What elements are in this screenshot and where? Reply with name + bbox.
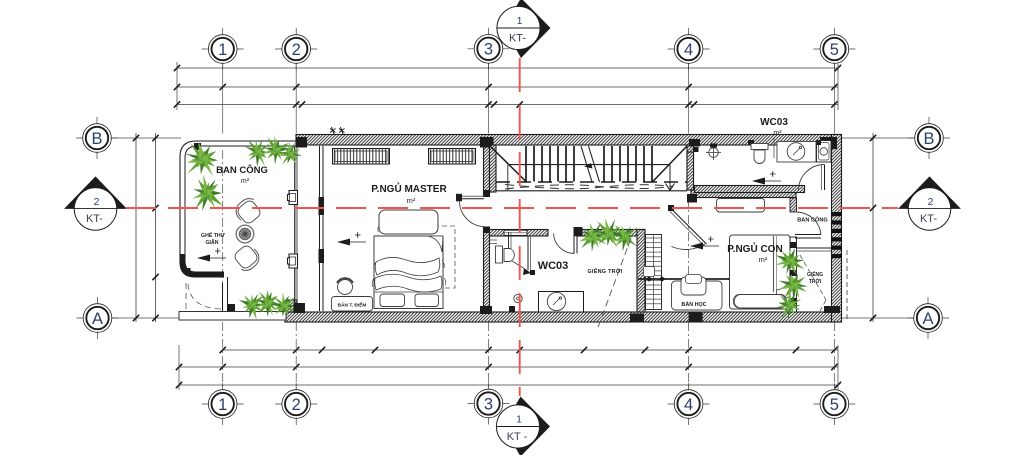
- svg-text:1: 1: [218, 41, 227, 59]
- svg-text:m²: m²: [407, 196, 416, 205]
- svg-text:5: 5: [830, 396, 839, 414]
- svg-text:4: 4: [684, 396, 693, 414]
- svg-text:BAN CÔNG: BAN CÔNG: [797, 216, 827, 224]
- svg-text:3: 3: [484, 41, 493, 59]
- svg-text:B: B: [923, 130, 934, 148]
- svg-text:BAN CÔNG: BAN CÔNG: [216, 164, 268, 176]
- svg-text:5: 5: [830, 41, 839, 59]
- svg-text:TRỜI: TRỜI: [809, 277, 822, 285]
- svg-text:1: 1: [218, 396, 227, 414]
- svg-text:BÀN T. ĐIỂM: BÀN T. ĐIỂM: [338, 302, 367, 309]
- svg-text:3: 3: [484, 395, 493, 413]
- svg-text:KT-: KT-: [920, 213, 937, 225]
- svg-text:m²: m²: [759, 255, 768, 264]
- svg-text:A: A: [922, 310, 933, 328]
- svg-text:P.NGỦ CON: P.NGỦ CON: [727, 242, 782, 255]
- svg-text:KT -: KT -: [507, 431, 528, 443]
- svg-text:m²: m²: [241, 178, 250, 185]
- svg-text:4: 4: [684, 41, 693, 59]
- svg-text:2: 2: [928, 196, 934, 208]
- svg-text:P.NGỦ MASTER: P.NGỦ MASTER: [371, 182, 447, 195]
- svg-text:2: 2: [292, 396, 301, 414]
- svg-text:B: B: [91, 130, 102, 148]
- svg-text:2: 2: [94, 196, 100, 208]
- svg-text:1: 1: [516, 414, 522, 426]
- svg-text:2: 2: [292, 41, 301, 59]
- svg-text:KT-: KT-: [509, 33, 526, 45]
- svg-text:BÀN HỌC: BÀN HỌC: [681, 301, 706, 308]
- svg-text:GIẾNG TRỜI: GIẾNG TRỜI: [587, 267, 622, 275]
- svg-text:WC03: WC03: [760, 117, 788, 128]
- svg-text:WC03: WC03: [538, 260, 569, 272]
- svg-text:m²: m²: [773, 130, 782, 137]
- svg-text:A: A: [92, 310, 103, 328]
- svg-text:GIẾNG: GIẾNG: [807, 271, 823, 278]
- svg-text:1: 1: [517, 15, 523, 27]
- svg-text:KT-: KT-: [86, 213, 103, 225]
- svg-text:GIÃN: GIÃN: [206, 239, 219, 246]
- svg-text:GHẾ THƯ: GHẾ THƯ: [201, 232, 226, 239]
